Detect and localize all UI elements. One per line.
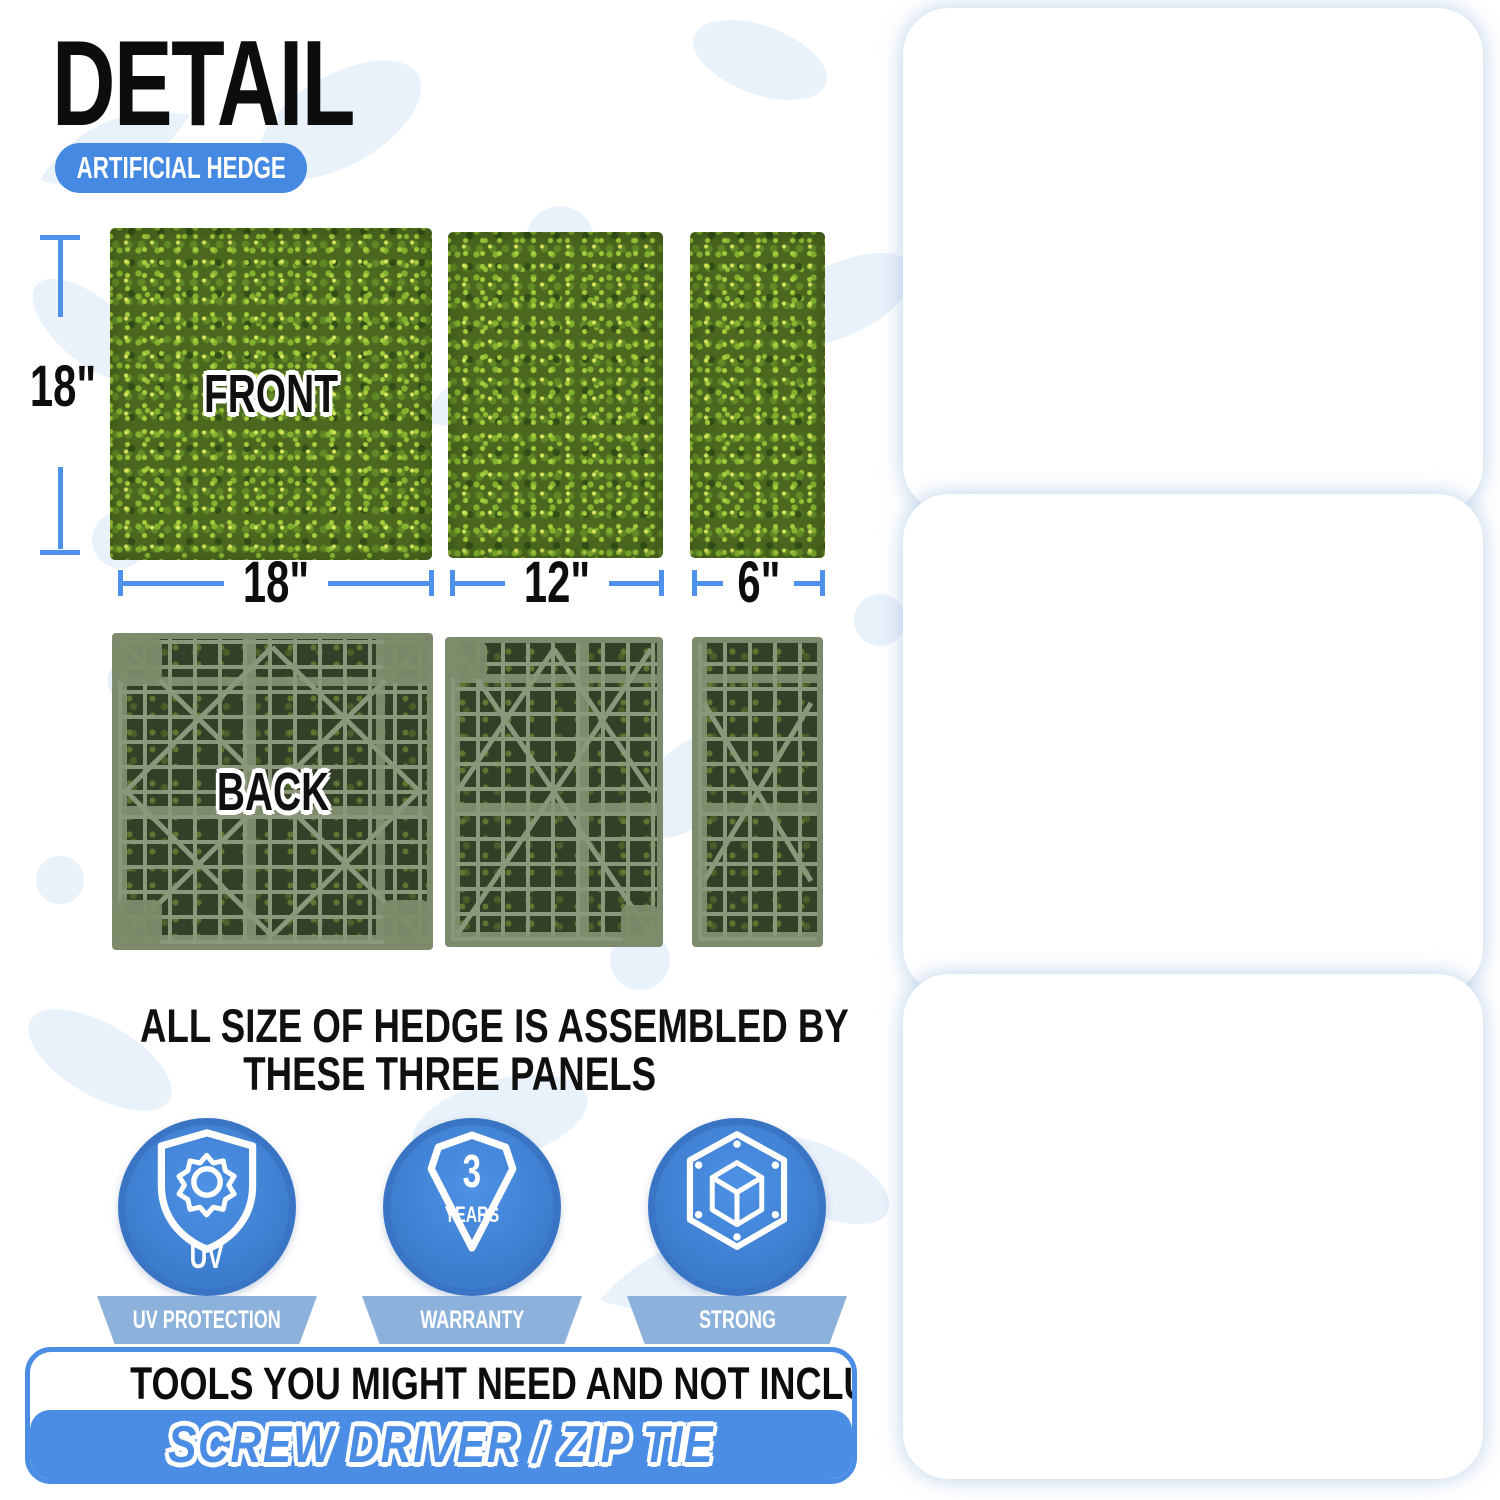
- badge-warranty-unit: YEARS: [357, 1202, 587, 1228]
- subtitle-badge: ARTIFICIAL HEDGE: [55, 143, 307, 193]
- badge-uv-text: UV: [92, 1238, 322, 1277]
- back-panel-brace-lines: [451, 643, 657, 941]
- front-panel-label: FRONT: [178, 363, 364, 425]
- badge-uv-protection: UV UV PROTECTION: [92, 1118, 322, 1368]
- uv-shield-icon: [147, 1128, 267, 1254]
- badge-warranty: 3 YEARS WARRANTY: [357, 1118, 587, 1368]
- width-dimension-18in-label: 18": [224, 557, 328, 609]
- tools-heading: TOOLS YOU MIGHT NEED AND NOT INCLUDE:: [30, 1358, 852, 1410]
- badge-ribbon-uv-protection: UV PROTECTION: [97, 1296, 317, 1344]
- strong-cube-icon: [675, 1128, 799, 1258]
- tools-value-bar: SCREW DRIVER / ZIP TIE: [30, 1410, 852, 1479]
- width-dimension-6in: 6": [692, 568, 825, 598]
- front-panel-6in: [690, 232, 825, 558]
- width-dimension-18in: 18": [118, 568, 434, 598]
- tools-value: SCREW DRIVER / ZIP TIE: [108, 1415, 774, 1475]
- width-dimension-6in-label: 6": [723, 557, 795, 609]
- photo-frame-bracket: [903, 494, 1483, 994]
- width-dimension-12in-label: 12": [505, 557, 609, 609]
- sun-icon: [179, 1155, 234, 1215]
- page-title: DETAIL: [52, 22, 471, 144]
- height-dimension-label: 18": [0, 353, 128, 420]
- width-dimension-12in: 12": [450, 568, 664, 598]
- back-panel-12in: [445, 637, 663, 947]
- back-panel-label: BACK: [195, 761, 351, 823]
- photo-frame-closeup: [903, 974, 1483, 1479]
- height-dimension: 18": [12, 235, 132, 565]
- badge-ribbon-warranty: WARRANTY: [362, 1296, 582, 1344]
- badge-strong: STRONG: [622, 1118, 852, 1368]
- front-panel-18in: FRONT: [110, 228, 432, 560]
- tools-box: TOOLS YOU MIGHT NEED AND NOT INCLUDE: SC…: [25, 1347, 857, 1484]
- back-panel-brace-lines: [698, 643, 817, 941]
- badge-ribbon-strong: STRONG: [627, 1296, 847, 1344]
- assembly-note: ALL SIZE OF HEDGE IS ASSEMBLED BY THESE …: [40, 1002, 860, 1098]
- badge-warranty-number: 3: [357, 1144, 587, 1198]
- infographic-canvas: DETAIL ARTIFICIAL HEDGE FRONT 18" 18" 12…: [0, 0, 1500, 1500]
- back-panel-6in: [692, 637, 823, 947]
- photo-frame-connectors: [903, 8, 1483, 512]
- front-panel-12in: [448, 232, 663, 558]
- back-panel-18in: BACK: [112, 633, 433, 950]
